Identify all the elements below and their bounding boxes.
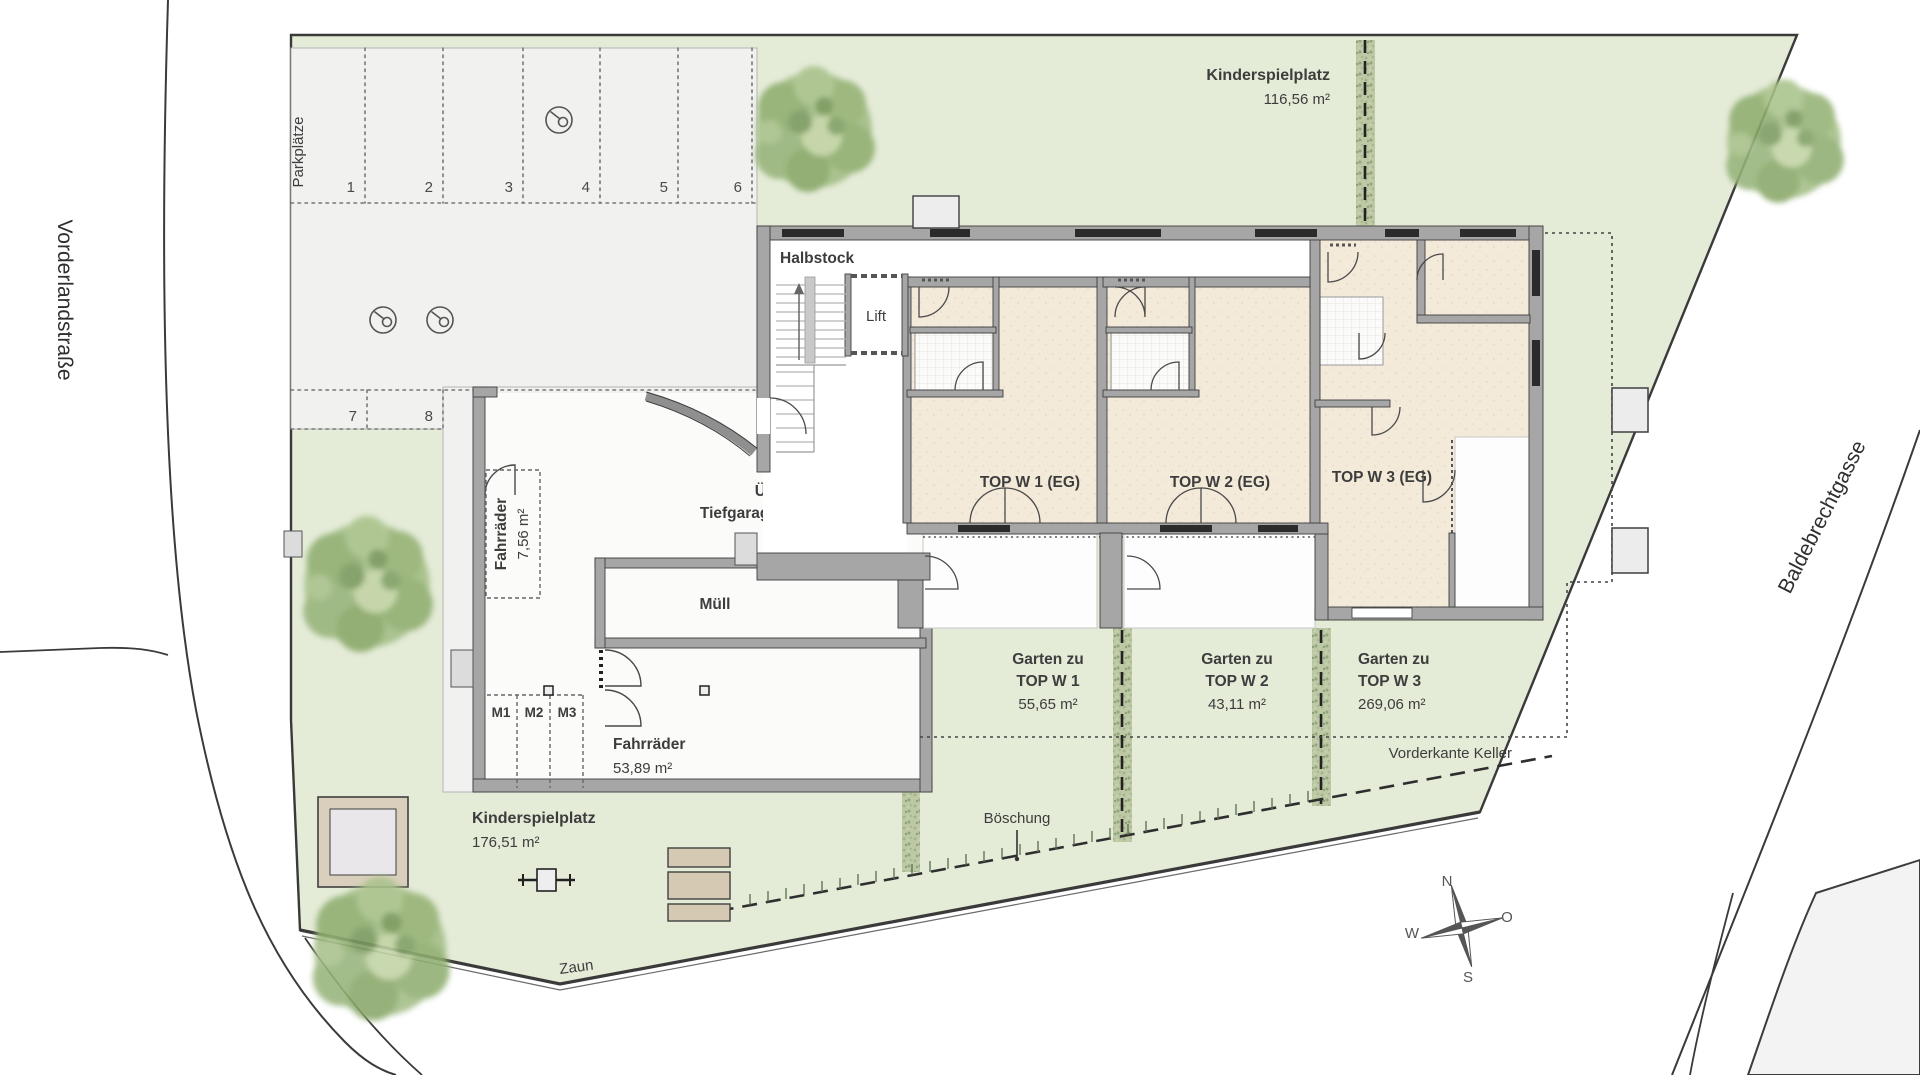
stall-number-5: 5 [660,179,668,196]
main-building: Halbstock Lift TOP W 1 (EG) TOP W 2 (EG)… [735,196,1543,628]
unit2-label: TOP W 2 (EG) [1170,474,1270,491]
bike-small-label: Fahrräder [493,498,510,570]
site-plan: 1 2 3 4 5 6 7 8 Parkplätze [0,0,1920,1075]
stall-number-8: 8 [425,408,433,425]
garden3-area: 269,06 m² [1358,696,1426,713]
picnic-table-icon [668,848,730,921]
neighbor-parcel [1748,860,1920,1075]
street-label-left: Vorderlandstraße [53,219,76,380]
window-sill [1352,608,1412,618]
half-level-label: Halbstock [780,250,854,267]
basement-edge-label: Vorderkante Keller [1389,745,1512,762]
compass-rose: N O S W [1405,873,1513,986]
stall-number-4: 4 [582,179,590,196]
garden2-line2: TOP W 2 [1205,673,1268,690]
moped-stall-m3: M3 [558,705,577,720]
playground-south-label: Kinderspielplatz [472,810,596,827]
tree-icon [1726,79,1844,202]
garden1-area: 55,65 m² [1018,696,1077,713]
unit3-label: TOP W 3 (EG) [1332,469,1432,486]
playground-north-label: Kinderspielplatz [1206,67,1330,84]
side-annex-box [451,650,473,687]
pillar-marker [544,686,553,695]
roof-box [913,196,959,228]
compass-east-label: O [1501,909,1513,926]
pillar-marker [700,686,709,695]
playground-south-area: 176,51 m² [472,834,540,851]
gate-box [284,531,302,557]
stall-number-3: 3 [505,179,513,196]
unit1-label: TOP W 1 (EG) [980,474,1080,491]
slope-leader-dot [1015,857,1019,861]
stair-hall-floor [763,233,907,555]
compass-north-label: N [1442,873,1453,890]
moped-stall-m1: M1 [492,705,511,720]
moped-stall-m2: M2 [525,705,544,720]
bike-large-label: Fahrräder [613,736,685,753]
stall-number-2: 2 [425,179,433,196]
waste-room-label: Müll [700,596,731,613]
balcony-pier [1612,388,1648,432]
compass-south-label: S [1463,969,1473,986]
compass-west-label: W [1405,925,1420,942]
lift-label: Lift [866,308,887,325]
unit2-floor [1103,277,1320,530]
bike-large-area: 53,89 m² [613,760,672,777]
parking-label: Parkplätze [290,117,307,188]
terrace-unit2 [1124,534,1315,628]
right-road-curb [1690,893,1733,1075]
stall-number-7: 7 [349,408,357,425]
terrace-unit1 [923,534,1097,628]
balcony-pier [1612,528,1648,573]
garden3-line1: Garten zu [1358,651,1429,668]
garden2-area: 43,11 m² [1208,696,1266,713]
street-label-right: Baldebrechtgasse [1774,437,1871,597]
stall-number-6: 6 [734,179,742,196]
slope-label: Böschung [984,810,1051,827]
garden1-line1: Garten zu [1012,651,1083,668]
garden3-line2: TOP W 3 [1358,673,1422,690]
entry-stoop [735,533,757,565]
left-road-spur [0,648,168,655]
compass-star [1411,875,1513,977]
bike-small-area: 7,56 m² [515,509,532,560]
garden1-line2: TOP W 1 [1016,673,1080,690]
parking-lot-surface [291,48,757,429]
playground-north-area: 116,56 m² [1264,91,1330,108]
terrace-unit3 [1455,437,1529,610]
stall-number-1: 1 [347,179,355,196]
site-plan-drawing: 1 2 3 4 5 6 7 8 Parkplätze [0,0,1920,1075]
garden-labels: Garten zu TOP W 1 55,65 m² Garten zu TOP… [1012,651,1429,713]
garden2-line1: Garten zu [1201,651,1272,668]
